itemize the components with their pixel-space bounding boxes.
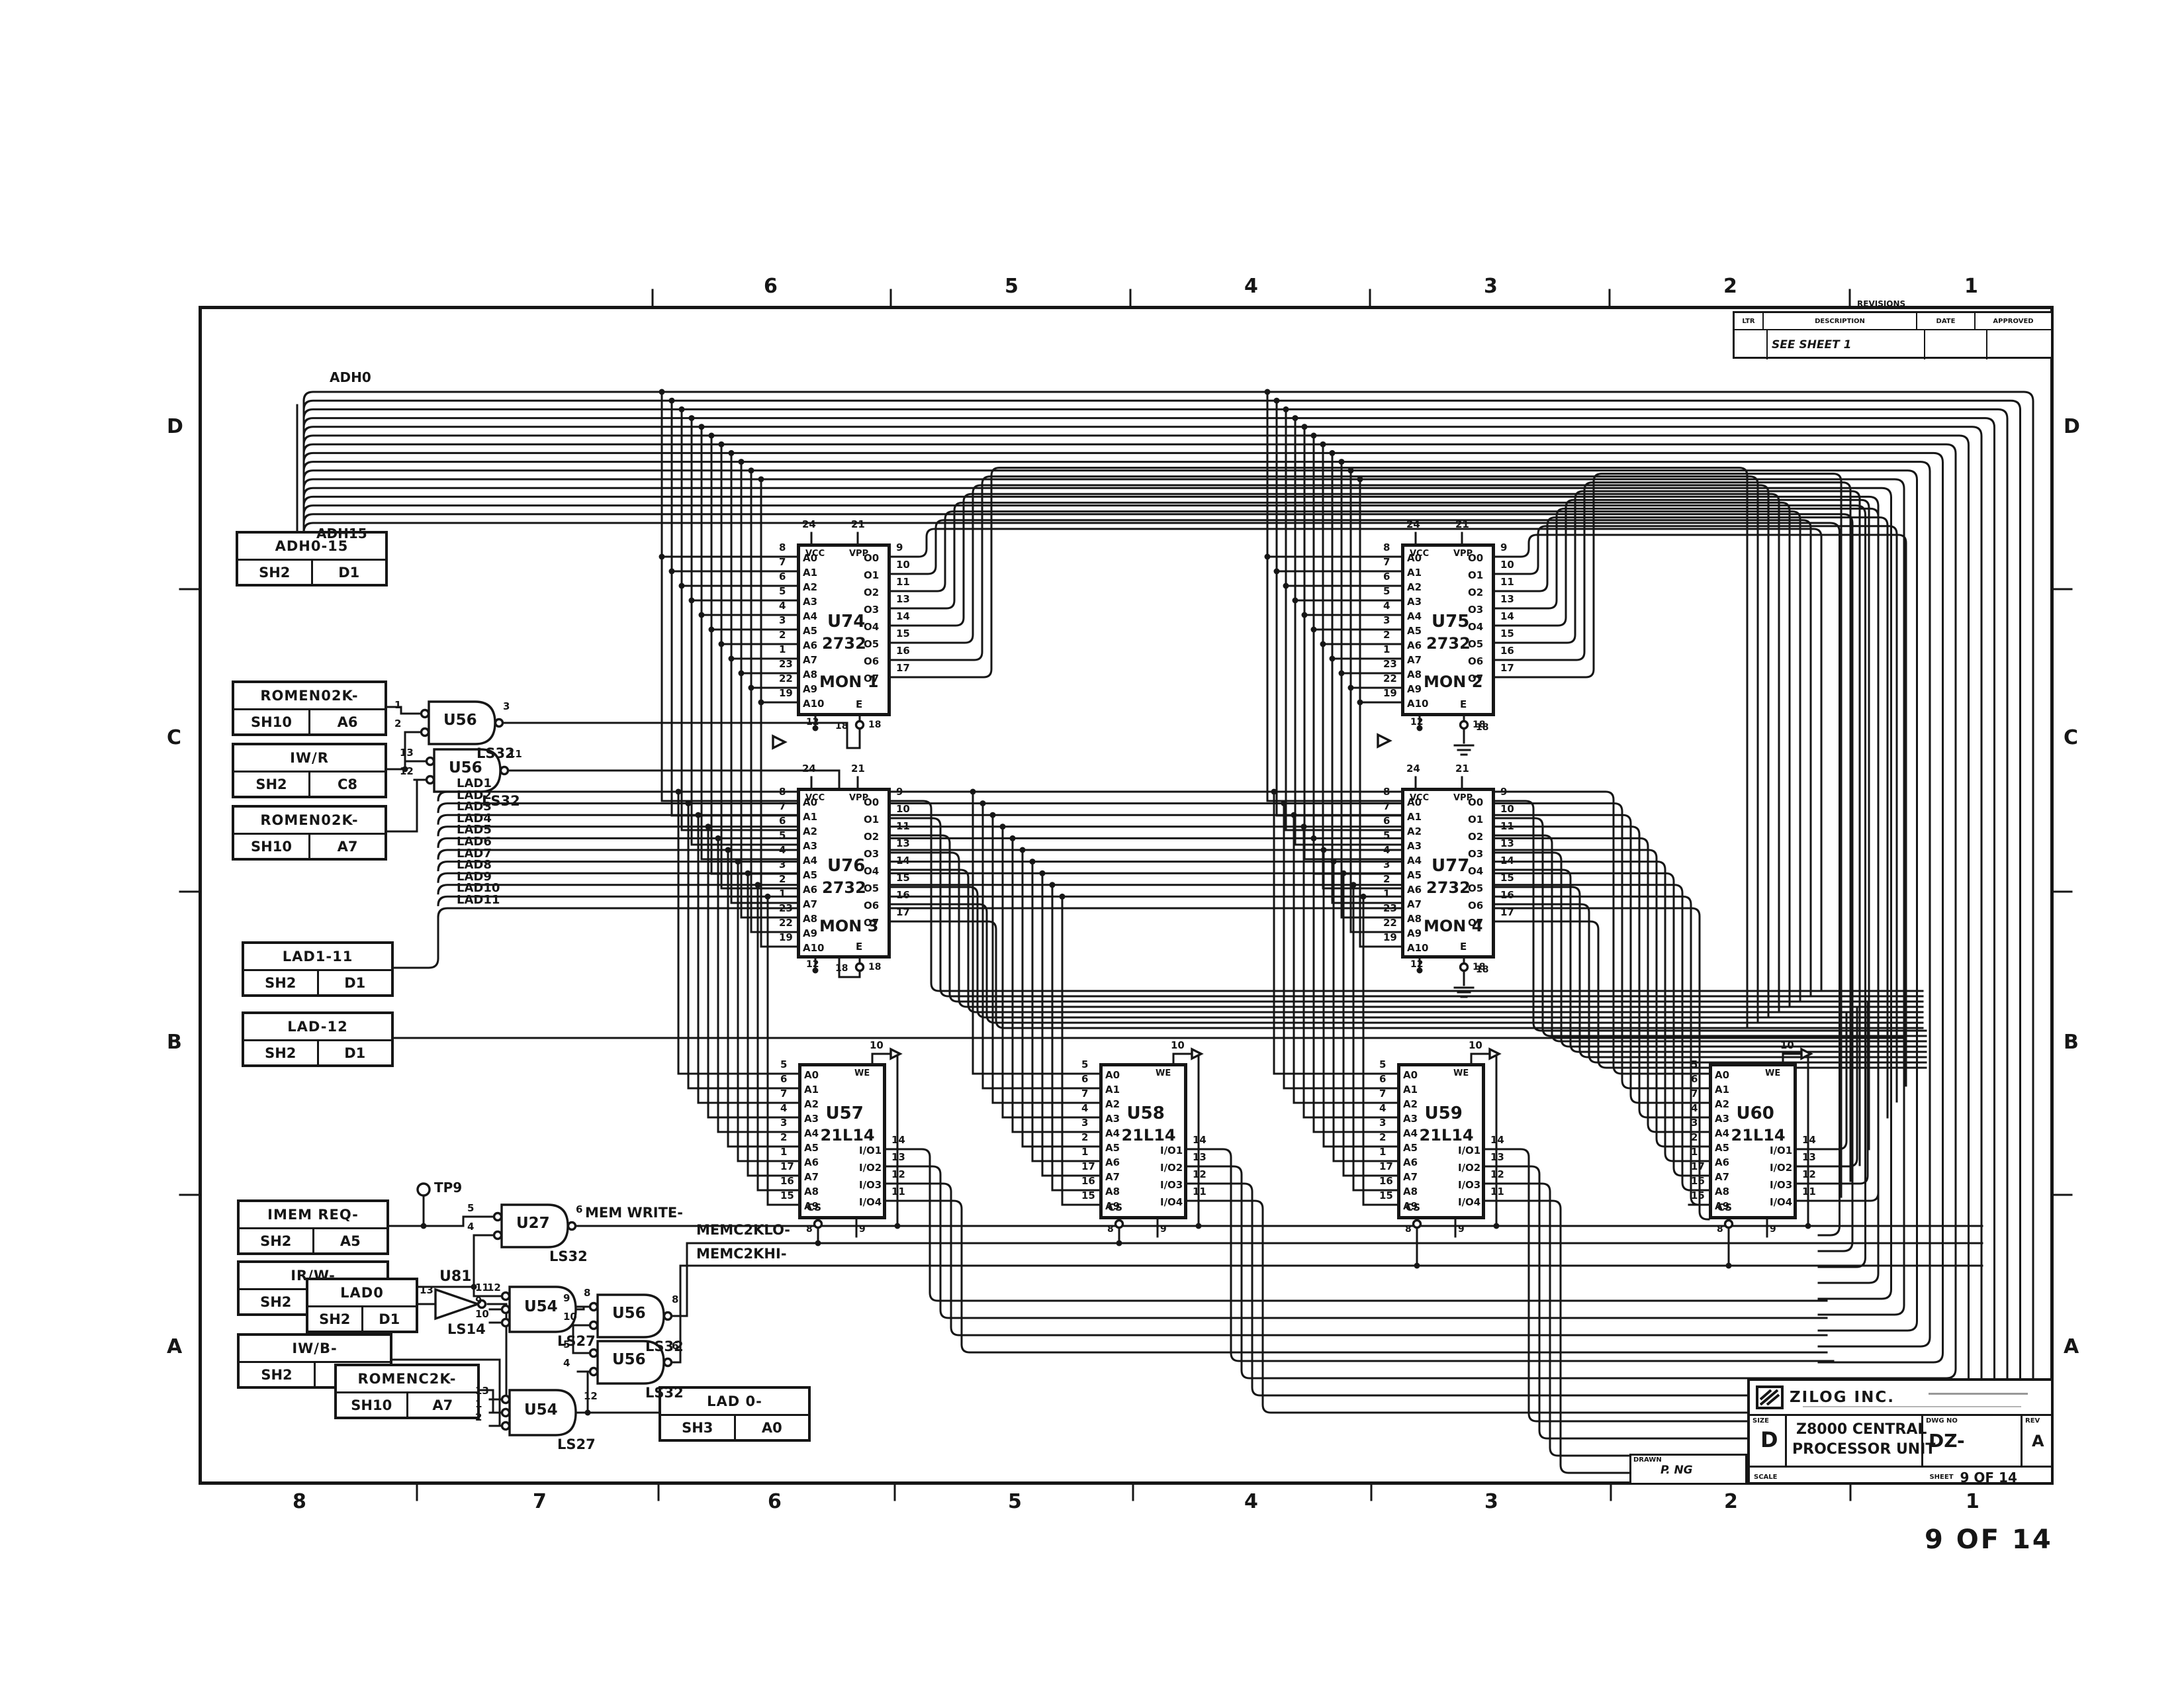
pin-name: CS [807,1203,821,1213]
pin-name: O1 [864,571,879,581]
pin-name: O7 [864,674,879,684]
gate-pin-in: 9 [563,1293,570,1303]
pin-number: 23 [779,659,793,669]
gate-part: LS32 [549,1250,588,1264]
pin-name: VPP [849,549,868,558]
chip-U60: U6021L14A0A1A2A3A4A5A6A7A8A9I/O1I/O2I/O3… [1709,1063,1797,1219]
pin-number: 6 [1691,1074,1698,1084]
pin-number: 8 [1107,1225,1114,1234]
pin-name: A8 [1407,670,1422,680]
pin-number: 17 [1500,663,1514,673]
pin-number: 7 [780,1089,787,1099]
pin-number: 4 [1379,1103,1386,1113]
pin-number: 1 [1379,1147,1386,1157]
connector-zone-ref: A0 [734,1416,809,1439]
chip-part: 2732 [822,880,866,896]
pin-number: 17 [896,663,910,673]
pin-number: 6 [1081,1074,1088,1084]
drawn-label: DRAWN [1633,1457,1662,1464]
pin-number: 3 [1383,616,1390,626]
pin-name: A5 [1105,1143,1120,1153]
pin-name: O3 [1468,605,1483,615]
gate-pin-in: 1 [475,1399,482,1409]
connector-signal: IW/R [234,745,385,773]
pin-number: 15 [1379,1191,1393,1201]
pin-number: 1 [1691,1147,1698,1157]
chip-part: 2732 [1426,635,1471,651]
pin-name: A0 [1105,1070,1120,1080]
pin-name: E [856,942,862,952]
gate-ref: U56 [612,1306,646,1321]
pin-number: 1 [779,645,786,655]
pin-number: 1 [780,1147,787,1157]
pin-number: 5 [1691,1060,1698,1070]
pin-name: E [856,700,862,710]
pin-number: 2 [1691,1133,1698,1143]
pin-name: A3 [1407,841,1422,851]
connector-romenc: ROMENC2K- SH10 A7 [334,1364,480,1419]
pin-name: A1 [803,812,817,822]
pin-name: O2 [864,588,879,598]
pin-name: A7 [1105,1172,1120,1182]
pin-name: A8 [803,914,817,924]
pin-name: A6 [803,641,817,651]
chip-U57: U5721L14A0A1A2A3A4A5A6A7A8A9I/O1I/O2I/O3… [798,1063,886,1219]
pin-name: A1 [1403,1085,1418,1095]
pin-name: WE [1765,1069,1780,1078]
pin-number: 22 [779,674,793,684]
title-block: ZILOG INC. SIZE D Z8000 CENTRAL PROCESSO… [1747,1378,2054,1485]
pin-name: A3 [1407,597,1422,607]
connector-signal: LAD1-11 [244,944,391,971]
pin-number: 14 [1500,612,1514,622]
pin-number: 21 [851,520,865,530]
pin-number: 4 [1383,845,1390,855]
pin-number: 7 [1379,1089,1386,1099]
pin-number: 6 [780,1074,787,1084]
row-left-A: A [167,1337,182,1357]
pin-name: I/O3 [859,1180,882,1190]
pin-name: O2 [864,832,879,842]
pin-name: O1 [1468,815,1483,825]
pin-number: 6 [779,816,786,826]
pin-name: O4 [864,867,879,876]
pin-name: O3 [864,849,879,859]
revision-entry-ltr [1735,330,1768,359]
pin-number: 15 [1691,1191,1705,1201]
connector-lad0: LAD0 SH2 D1 [306,1278,418,1333]
pin-number: 14 [1193,1135,1206,1145]
connector-lad1_11: LAD1-11 SH2 D1 [242,941,394,997]
pin-number: 7 [1383,557,1390,567]
chip-part: 2732 [822,635,866,651]
pin-number: 12 [1802,1170,1816,1180]
pin-number-rom-gnd: 18 [1476,965,1488,974]
pin-number: 6 [779,572,786,582]
pin-number: 2 [1383,874,1390,884]
pin-name: O5 [864,639,879,649]
pin-name: A7 [1407,900,1422,910]
gate-pin-in: 5 [563,1340,570,1350]
chip-ref: U57 [826,1105,864,1122]
pin-number: 10 [1500,804,1514,814]
bus-label-adh15: ADH15 [316,527,367,540]
pin-number: 9 [1458,1225,1465,1234]
pin-name: A7 [1407,655,1422,665]
connector-zone-ref: D1 [311,561,386,584]
pin-number: 22 [779,918,793,928]
chip-part: 21L14 [821,1127,875,1143]
pin-number: 13 [896,839,910,849]
pin-name: A4 [804,1129,819,1139]
pin-name: A10 [803,943,824,953]
zone-top-6: 6 [764,277,778,297]
pin-number: 8 [1405,1225,1412,1234]
revision-col-description: DESCRIPTION [1764,313,1917,329]
pin-number: 4 [1081,1103,1088,1113]
drawing-title-line1: Z8000 CENTRAL [1796,1423,1927,1437]
gate-pin-in: 4 [467,1222,474,1232]
pin-number: 7 [779,557,786,567]
rev-label: REV [2025,1418,2040,1425]
connector-zone-ref: A7 [406,1393,478,1417]
zone-top-1: 1 [1964,277,1978,297]
pin-name: A4 [1403,1129,1418,1139]
pin-number: 3 [1383,860,1390,870]
pin-name: VCC [805,549,825,558]
pin-number: 24 [802,764,816,774]
pin-number: 1 [779,889,786,899]
pin-number: 15 [1081,1191,1095,1201]
pin-name: A10 [1407,943,1428,953]
connector-sheet-ref: SH2 [240,1290,312,1313]
pin-number: 19 [1383,688,1397,698]
pin-name: I/O4 [1458,1197,1480,1207]
pin-name: A6 [1407,885,1422,895]
pin-number: 14 [1490,1135,1504,1145]
pin-name: O6 [1468,901,1483,911]
pin-number: 23 [1383,904,1397,914]
pin-name: E [1460,942,1467,952]
connector-zone-ref: D1 [361,1307,416,1331]
pin-number: 7 [1383,802,1390,812]
gate-pin-in: 13 [400,748,414,758]
pin-name: A4 [1407,856,1422,866]
pin-name: A3 [804,1114,819,1124]
pin-number: 10 [1469,1041,1482,1051]
pin-name: A9 [1407,929,1422,939]
gate-pin-out: 6 [576,1205,582,1215]
pin-name: A9 [1407,684,1422,694]
title-block-company-row: ZILOG INC. [1750,1381,2051,1416]
pin-number: 16 [896,890,910,900]
sheet-label: SHEET [1929,1474,1953,1481]
connector-sheet-ref: SH10 [337,1393,406,1417]
pin-number: 13 [1193,1152,1206,1162]
pin-name: A6 [1105,1158,1120,1168]
pin-number: 24 [802,520,816,530]
chip-U76: U762732MON 3A0A1A2A3A4A5A6A7A8A9A10O0O1O… [797,788,891,959]
pin-number: 9 [896,543,903,553]
pin-name: VPP [1453,549,1473,558]
pin-name: I/O3 [1160,1180,1183,1190]
gate-pin-out: 6 [672,1341,678,1351]
pin-number: 12 [806,960,819,969]
company-address-mark [1929,1393,2028,1395]
pin-number: 17 [1691,1162,1705,1172]
pin-name: A7 [803,655,817,665]
connector-sheet-ref: SH2 [244,1041,317,1064]
pin-number: 16 [780,1176,794,1186]
pin-name: VCC [1410,794,1429,802]
pin-number: 17 [1081,1162,1095,1172]
pin-name: A7 [803,900,817,910]
pin-number: 12 [1410,960,1423,969]
pin-number: 21 [851,764,865,774]
pin-name: A5 [803,870,817,880]
gate-part: LS32 [645,1386,684,1400]
pin-number: 2 [779,630,786,640]
title-block-main-row: SIZE D Z8000 CENTRAL PROCESSOR UNIT DWG … [1750,1416,2051,1468]
pin-name: A5 [804,1143,819,1153]
pin-number: 13 [896,594,910,604]
pin-number: 6 [1379,1074,1386,1084]
pin-number: 12 [1410,718,1423,727]
pin-number: 3 [1081,1118,1088,1128]
pin-number: 16 [1379,1176,1393,1186]
pin-number: 11 [896,821,910,831]
chip-ref: U76 [827,857,865,874]
pin-number: 11 [1500,821,1514,831]
gate-pin-out: 12 [487,1283,501,1293]
pin-name: A7 [1715,1172,1729,1182]
pin-name: O3 [864,605,879,615]
pin-name: A8 [1105,1187,1120,1197]
pin-name: A3 [1403,1114,1418,1124]
pin-number: 15 [1500,629,1514,639]
gate-part: LS14 [447,1323,486,1336]
pin-number: 13 [891,1152,905,1162]
zone-bottom-3: 3 [1484,1492,1498,1512]
title-block-sheet-row: SCALE SHEET 9 OF 14 [1750,1468,2051,1487]
pin-number: 11 [1802,1187,1816,1197]
pin-name: I/O1 [1770,1146,1792,1156]
gate-ref: U54 [524,1403,558,1418]
pin-number: 5 [780,1060,787,1070]
pin-name: A8 [1715,1187,1729,1197]
pin-name: O6 [864,657,879,667]
pin-name: I/O1 [1160,1146,1183,1156]
pin-number-rom-gnd: 18 [1476,723,1488,732]
connector-romen_a6: ROMEN02K- SH10 A6 [232,680,387,736]
pin-number: 11 [1193,1187,1206,1197]
pin-name: A8 [1403,1187,1418,1197]
pin-number: 2 [779,874,786,884]
pin-number: 8 [1383,787,1390,797]
pin-name: A2 [1715,1100,1729,1109]
pin-number: 24 [1406,520,1420,530]
pin-number: 7 [1081,1089,1088,1099]
zone-bottom-1: 1 [1966,1492,1979,1512]
connector-zone-ref: C8 [308,773,385,796]
pin-name: A6 [804,1158,819,1168]
pin-name: O2 [1468,832,1483,842]
pin-name: A0 [1715,1070,1729,1080]
pin-number: 4 [780,1103,787,1113]
pin-name: A5 [1407,870,1422,880]
chip-U74: U742732MON 1A0A1A2A3A4A5A6A7A8A9A10O0O1O… [797,543,891,716]
pin-number: 8 [779,787,786,797]
pin-number: 14 [896,612,910,622]
pin-number: 2 [1081,1133,1088,1143]
pin-number: 22 [1383,674,1397,684]
connector-memreq: IMEM REQ- SH2 A5 [237,1199,389,1255]
row-left-D: D [167,417,183,437]
pin-name: I/O2 [1458,1163,1480,1173]
gate-pin-in: 10 [475,1309,489,1319]
pin-number: 23 [1383,659,1397,669]
pin-number: 1 [1383,889,1390,899]
pin-number: 4 [779,845,786,855]
pin-number: 14 [891,1135,905,1145]
pin-number: 11 [896,577,910,587]
rev-value: A [2032,1433,2044,1449]
connector-sheet-ref: SH2 [240,1229,312,1252]
pin-name: O4 [1468,622,1483,632]
pin-number: 19 [779,688,793,698]
revisions-title: REVISIONS [1857,300,1905,308]
chip-U75: U752732MON 2A0A1A2A3A4A5A6A7A8A9A10O0O1O… [1401,543,1495,716]
revision-entry-row: SEE SHEET 1 [1735,330,2051,359]
pin-number: 16 [896,646,910,656]
pin-number: 10 [1500,560,1514,570]
dwg-no-label: DWG NO [1926,1418,1958,1425]
pin-name: A10 [1407,699,1428,709]
gate-pin-in: 13 [420,1286,433,1295]
pin-number: 5 [1383,831,1390,841]
pin-name: A2 [803,827,817,837]
pin-number: 3 [1691,1118,1698,1128]
gate-pin-in: 13 [475,1386,489,1396]
pin-number: 12 [891,1170,905,1180]
gate-pin-in: 9 [475,1296,482,1306]
chip-part: 21L14 [1122,1127,1176,1143]
schematic-sheet: 65432187654321DCBADCBA876543212322199101… [0,0,2184,1688]
chip-ref: U74 [827,613,865,630]
connector-zone-ref: D1 [317,1041,392,1064]
pin-number: 17 [1500,908,1514,917]
connector-sheet-ref: SH2 [244,971,317,994]
gate-pin-out: 11 [508,749,522,759]
row-right-C: C [2064,728,2078,748]
connector-sheet-ref: SH2 [308,1307,361,1331]
zilog-logo-icon [1755,1385,1784,1410]
revision-header-row: LTR DESCRIPTION DATE APPROVED [1735,313,2051,330]
pin-number: 4 [1691,1103,1698,1113]
pin-name: A5 [803,626,817,636]
pin-number-rom-gnd: 18 [835,722,848,731]
pin-name: A1 [803,568,817,578]
pin-number: 17 [780,1162,794,1172]
connector-signal: LAD-12 [244,1014,391,1041]
connector-signal: ROMENC2K- [337,1366,477,1393]
pin-name: O1 [1468,571,1483,581]
pin-name: A2 [1407,827,1422,837]
pin-number: 7 [779,802,786,812]
company-name: ZILOG INC. [1790,1390,1895,1405]
connector-signal: IMEM REQ- [240,1202,387,1229]
pin-name: A7 [1403,1172,1418,1182]
pin-name: CS [1717,1203,1732,1213]
connector-zone-ref: A5 [312,1229,387,1252]
pin-number: 1 [1383,645,1390,655]
pin-number: 17 [896,908,910,917]
connector-iwr: IW/R SH2 C8 [232,743,387,798]
pin-number: 15 [896,873,910,883]
pin-name: A8 [1407,914,1422,924]
pin-name: I/O1 [1458,1146,1480,1156]
pin-number: 10 [896,560,910,570]
connector-sheet-ref: SH2 [238,561,311,584]
pin-name: E [1460,700,1467,710]
pin-name: A8 [803,670,817,680]
pin-number: 4 [779,601,786,611]
zone-top-3: 3 [1484,277,1498,297]
gate-ref: U27 [516,1216,550,1231]
zone-bottom-2: 2 [1724,1492,1738,1512]
pin-number: 15 [780,1191,794,1201]
pin-number: 10 [870,1041,884,1051]
pin-number: 8 [806,1225,813,1234]
connector-signal: ROMEN02K- [234,683,385,710]
pin-number: 12 [1490,1170,1504,1180]
pin-name: A1 [1407,568,1422,578]
gate-pin-out: 8 [584,1288,590,1298]
pin-name: A9 [803,929,817,939]
revision-col-ltr: LTR [1735,313,1764,329]
connector-sheet-ref: SH10 [234,710,308,733]
row-left-C: C [167,728,181,748]
pin-name: I/O4 [859,1197,882,1207]
pin-name: A8 [804,1187,819,1197]
pin-number: 14 [1500,856,1514,866]
pin-number: 13 [1500,594,1514,604]
pin-number: 15 [1500,873,1514,883]
pin-name: A6 [1403,1158,1418,1168]
pin-number: 13 [1500,839,1514,849]
connector-zone-ref: D1 [317,971,392,994]
pin-name: O7 [864,918,879,928]
dwg-no-value: DZ- [1929,1432,1965,1450]
zone-bottom-7: 7 [533,1492,547,1512]
bus-label-adh0: ADH0 [330,371,371,384]
pin-name: VPP [849,794,868,802]
size-value: D [1760,1429,1778,1450]
pin-number: 7 [1691,1089,1698,1099]
gate-ref: U56 [612,1352,646,1368]
drawn-signature: P. NG [1661,1465,1693,1476]
revision-col-approved: APPROVED [1976,313,2051,329]
connector-zone-ref: A7 [308,835,385,858]
pin-number: 21 [1455,520,1469,530]
connector-romen_a7: ROMEN02K- SH10 A7 [232,805,387,861]
connector-signal: IW/B- [240,1336,390,1363]
chip-ref: U58 [1127,1105,1165,1122]
pin-name: O6 [1468,657,1483,667]
pin-number: 8 [1717,1225,1723,1234]
pin-number: 22 [1383,918,1397,928]
pin-number: 19 [1383,933,1397,943]
